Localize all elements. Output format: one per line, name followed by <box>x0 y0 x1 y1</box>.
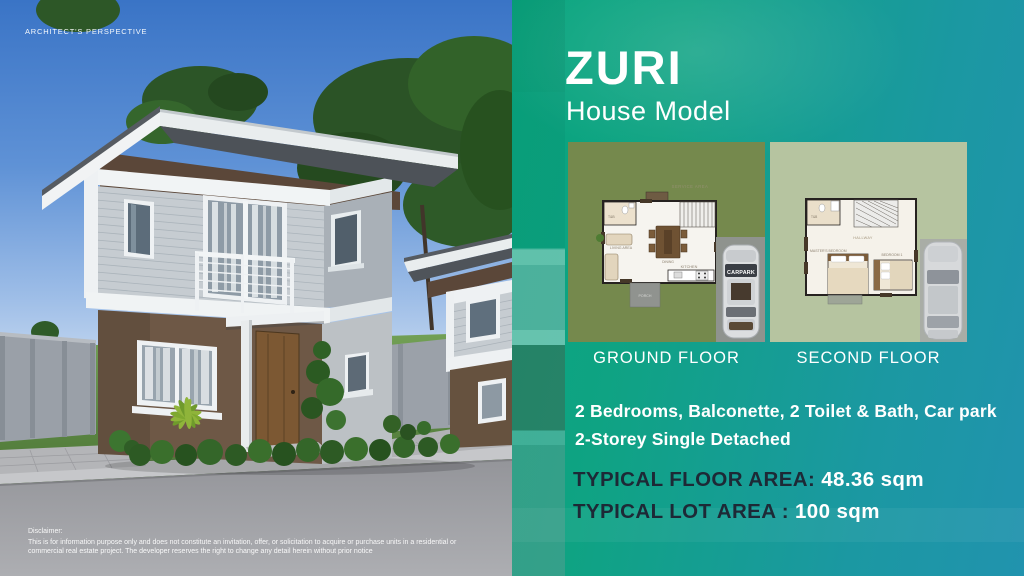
second-floor-label: SECOND FLOOR <box>770 349 967 368</box>
info-panel: ZURI House Model SERVICE AREA T&B <box>512 0 1024 576</box>
car-top-view <box>723 245 759 338</box>
disclaimer: Disclaimer: This is for information purp… <box>28 528 490 556</box>
room-label-master: MASTER'S BEDROOM <box>810 249 847 253</box>
lot-area-row: TYPICAL LOT AREA :100 sqm <box>573 496 924 528</box>
ground-floor-plan: SERVICE AREA T&B <box>568 142 765 342</box>
room-label-living: LIVING AREA <box>610 246 633 250</box>
second-floor-plan: T&B HALLWAY MASTER'S BEDROOM BEDROOM 1 <box>770 142 967 342</box>
feature-list: 2 Bedrooms, Balconette, 2 Toilet & Bath,… <box>575 398 997 453</box>
room-label-porch: PORCH <box>639 294 652 298</box>
ghost-house-overlay <box>512 0 565 576</box>
house-model-title: ZURI <box>565 40 683 95</box>
room-label-carpark: CARPARK <box>727 270 755 276</box>
car-top-view-2 <box>924 242 962 339</box>
floor-area-row: TYPICAL FLOOR AREA:48.36 sqm <box>573 464 924 496</box>
second-floor-plan-image: T&B HALLWAY MASTER'S BEDROOM BEDROOM 1 <box>770 142 967 342</box>
ground-floor-label: GROUND FLOOR <box>568 349 765 368</box>
floor-plan-labels: GROUND FLOOR SECOND FLOOR <box>568 349 967 368</box>
house-render <box>0 0 512 576</box>
floor-area-label: TYPICAL FLOOR AREA: <box>573 468 815 491</box>
room-label-service-area: SERVICE AREA <box>672 184 709 189</box>
room-label-tb2: T&B <box>811 215 817 219</box>
disclaimer-body: This is for information purpose only and… <box>28 539 490 556</box>
room-label-dining: DINING <box>662 260 674 264</box>
room-label-hallway: HALLWAY <box>853 236 873 240</box>
room-label-kitchen: KITCHEN <box>681 265 698 269</box>
area-specs: TYPICAL FLOOR AREA:48.36 sqm TYPICAL LOT… <box>573 464 924 527</box>
upper-side-window <box>328 210 364 272</box>
concrete-fence-left <box>0 332 96 442</box>
room-label-tb: T&B <box>608 215 615 219</box>
architect-perspective-label: ARCHITECT'S PERSPECTIVE <box>25 27 147 36</box>
floor-area-value: 48.36 sqm <box>821 468 924 491</box>
house-model-subtitle: House Model <box>566 96 731 127</box>
room-label-bedroom1: BEDROOM 1 <box>881 253 902 257</box>
feature-line-1: 2 Bedrooms, Balconette, 2 Toilet & Bath,… <box>575 398 997 426</box>
architect-perspective-photo: ARCHITECT'S PERSPECTIVE Disclaimer: This… <box>0 0 512 576</box>
front-door <box>256 331 299 447</box>
ground-floor-plan-image: SERVICE AREA T&B <box>568 142 765 342</box>
lower-side-window <box>341 352 373 399</box>
flyer-page: ARCHITECT'S PERSPECTIVE Disclaimer: This… <box>0 0 1024 576</box>
balcony-sliding-door <box>203 195 287 305</box>
lot-area-value: 100 sqm <box>795 500 880 523</box>
floor-plan-thumbnails: SERVICE AREA T&B <box>568 142 967 342</box>
upper-left-window <box>124 199 154 259</box>
disclaimer-title: Disclaimer: <box>28 528 490 535</box>
feature-line-2: 2-Storey Single Detached <box>575 426 997 454</box>
lot-area-label: TYPICAL LOT AREA : <box>573 500 789 523</box>
